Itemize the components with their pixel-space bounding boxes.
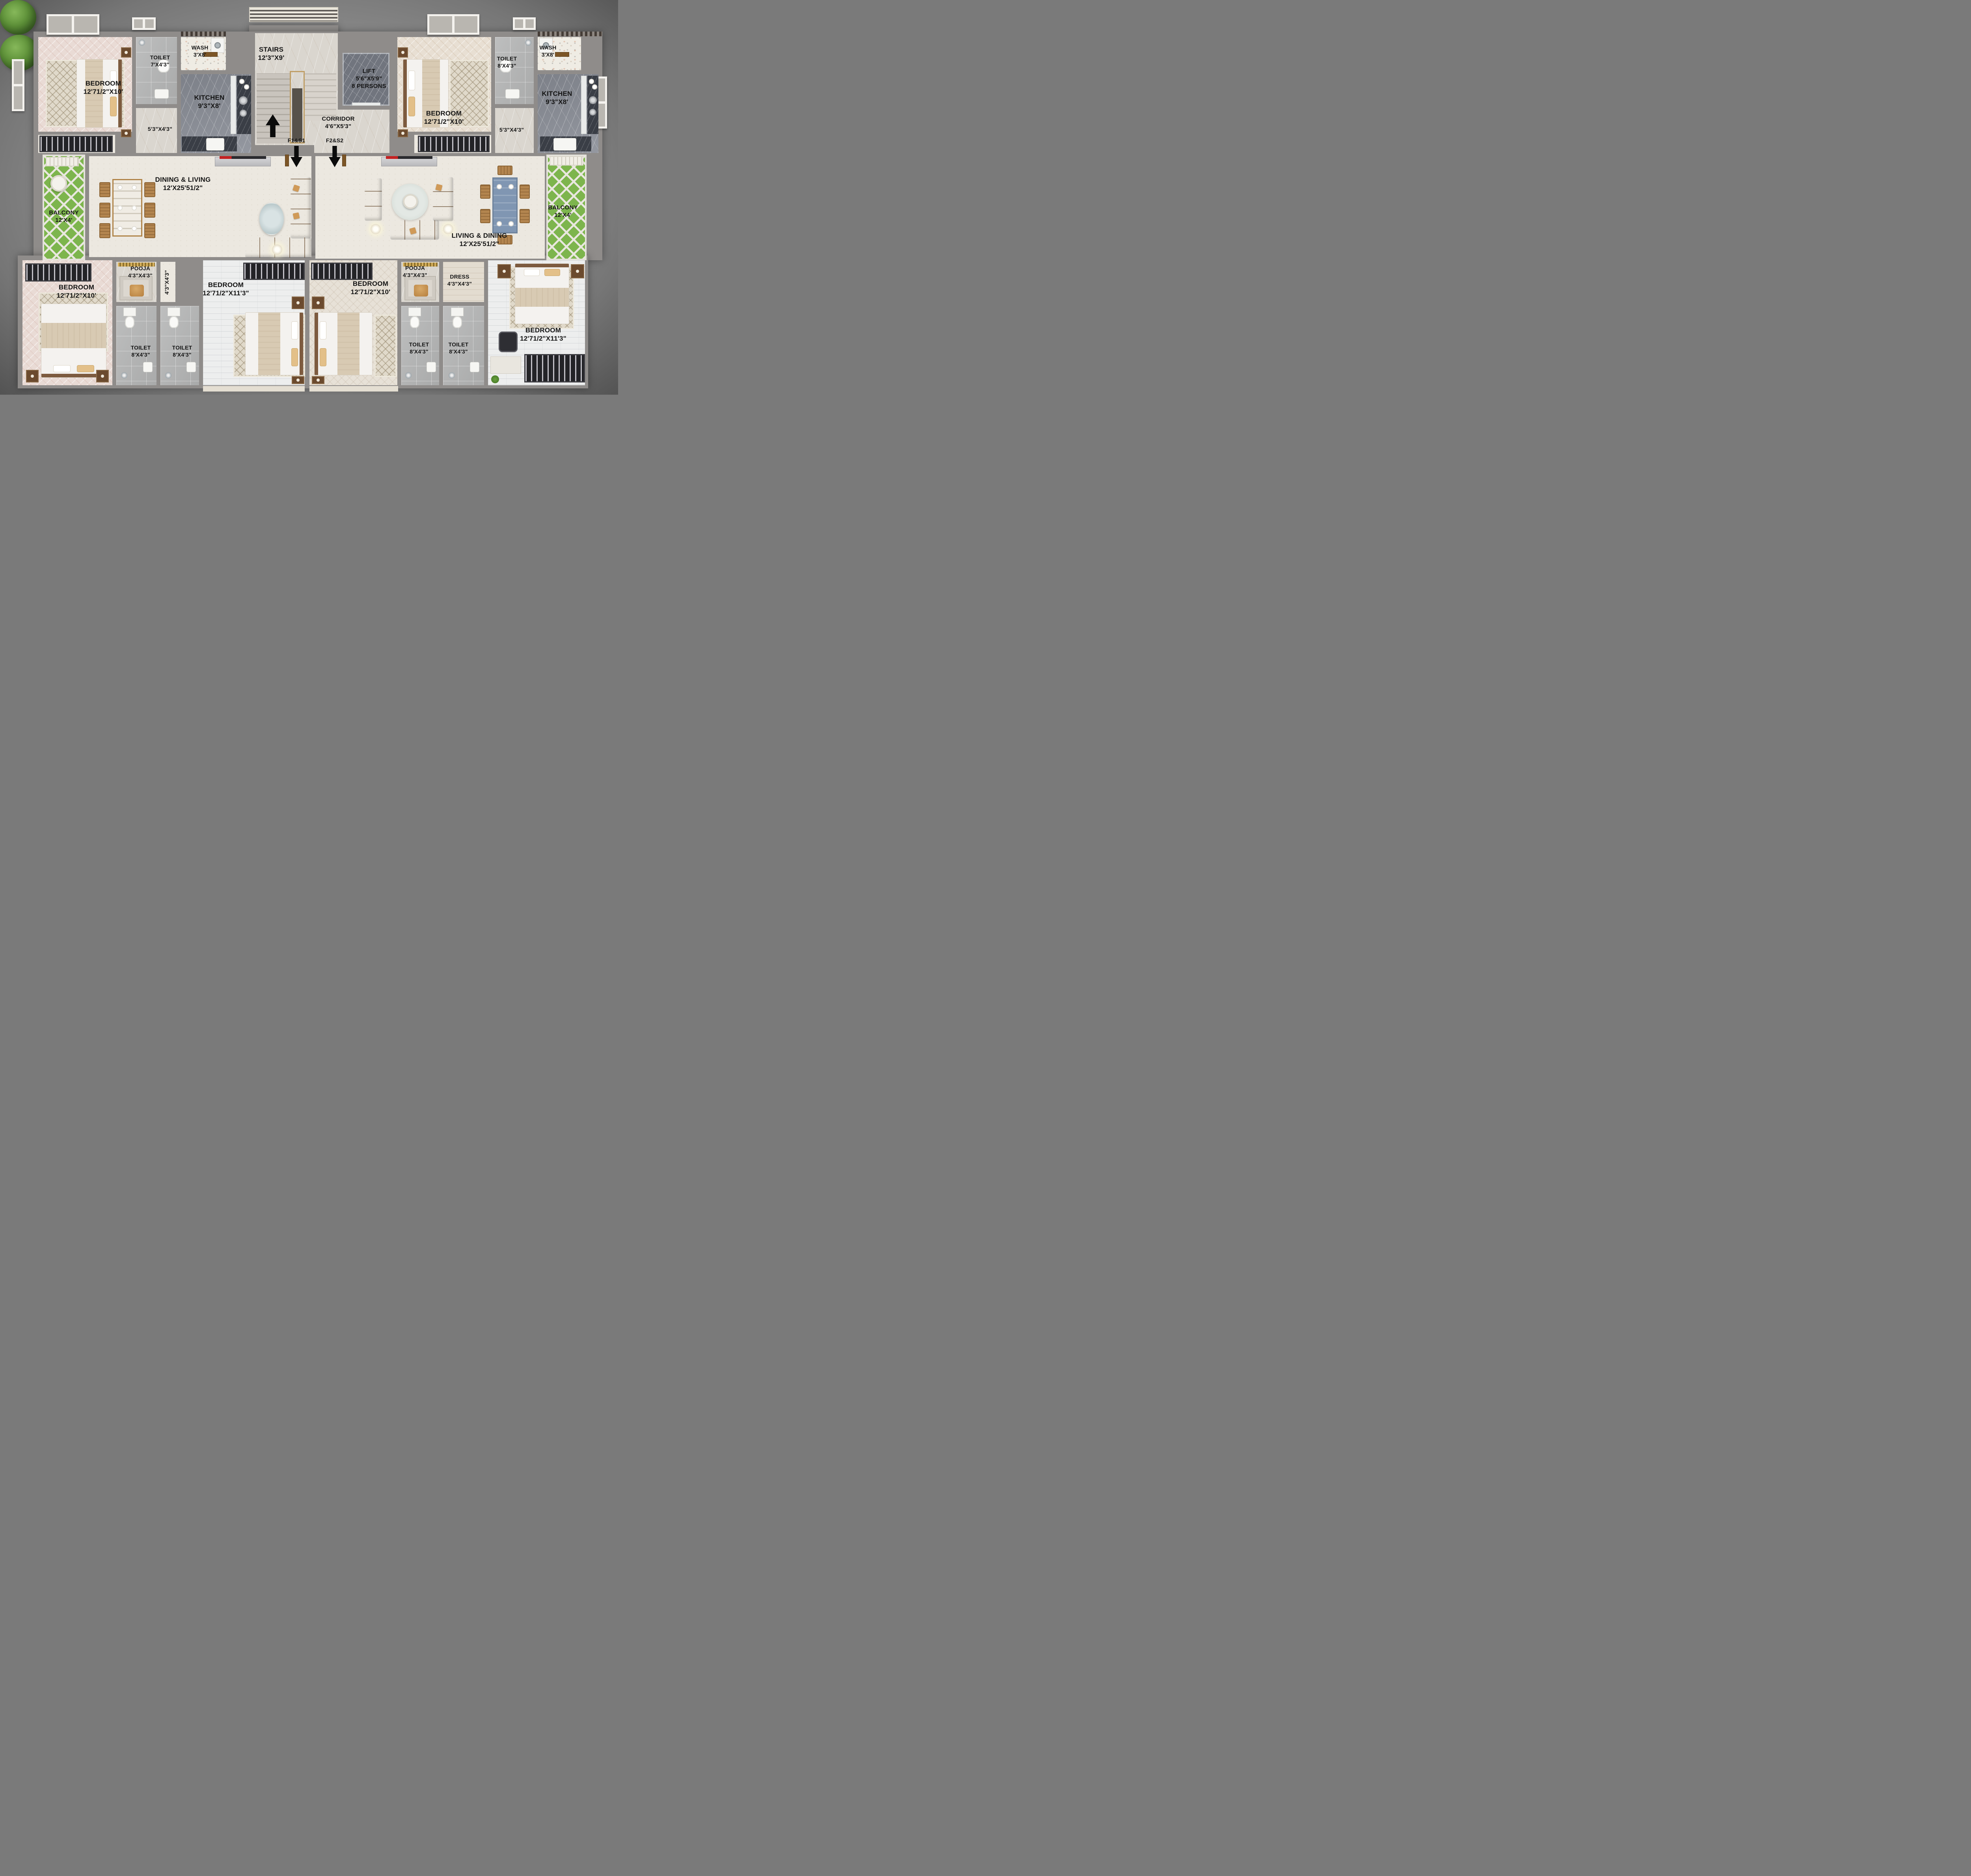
shower-head bbox=[121, 372, 127, 379]
room-label-balcony-left: BALCONY 12'X4' bbox=[49, 210, 79, 224]
room-label-stairs: STAIRS 12'3"X9' bbox=[258, 46, 285, 62]
tree bbox=[0, 0, 36, 35]
room-label-wash-right: WASH 3'X8' bbox=[540, 45, 557, 58]
wash-pergola-right bbox=[538, 32, 602, 36]
room-dims: 8'X4'3" bbox=[497, 63, 516, 69]
room-dims: 12'71/2"X10' bbox=[351, 288, 391, 296]
dining-chair bbox=[144, 203, 155, 218]
room-name: TOILET bbox=[449, 341, 469, 348]
room-name: STAIRS bbox=[259, 46, 283, 53]
room-dims: 4'3"X4'3" bbox=[403, 272, 427, 278]
room-name: BEDROOM bbox=[353, 280, 388, 287]
office-chair bbox=[500, 333, 516, 351]
toilet-cistern bbox=[123, 308, 136, 316]
dining-chair bbox=[99, 182, 110, 197]
room-dims: 7'X4'3" bbox=[151, 62, 169, 68]
room-label-bedroom-bottom-center-left: BEDROOM 12'71/2"X11'3" bbox=[203, 281, 249, 297]
nightstand bbox=[121, 129, 131, 137]
room-name: DRESS bbox=[450, 274, 469, 280]
room-label-toilet-bottom-left-1: TOILET 8'X4'3" bbox=[131, 345, 151, 358]
unit-label-f2s2: F2&S2 bbox=[326, 138, 344, 144]
room-dims: 12'71/2"X11'3" bbox=[203, 289, 249, 297]
dining-chair bbox=[144, 182, 155, 197]
room-name: LIFT bbox=[363, 68, 375, 75]
kitchen-cabinet bbox=[231, 76, 236, 134]
room-label-bedroom-bottom-center-right: BEDROOM 12'71/2"X10' bbox=[351, 280, 391, 296]
pergola-roof bbox=[249, 7, 338, 22]
dining-chair bbox=[144, 223, 155, 238]
floor-lamp bbox=[371, 224, 381, 234]
room-dims: 3'X8' bbox=[542, 52, 555, 58]
room-name: TOILET bbox=[150, 54, 170, 61]
sofa bbox=[365, 178, 382, 221]
room-label-pooja-left: POOJA 4'3"X4'3" bbox=[128, 265, 153, 278]
balcony-table bbox=[50, 175, 67, 192]
room-label-toilet-bottom-right-1: TOILET 8'X4'3" bbox=[409, 341, 429, 354]
coffee-table bbox=[259, 203, 284, 235]
lift-door-sill bbox=[352, 103, 380, 106]
tv-screen bbox=[386, 156, 432, 159]
wardrobe bbox=[243, 263, 305, 280]
room-name: BEDROOM bbox=[208, 281, 244, 289]
room-label-toilet-top-right: TOILET 8'X4'3" bbox=[497, 56, 517, 69]
nightstand bbox=[571, 264, 584, 278]
room-name: KITCHEN bbox=[194, 94, 225, 101]
wash-pergola-left bbox=[181, 32, 226, 36]
room-name: TOILET bbox=[409, 341, 429, 348]
coffee-table bbox=[403, 194, 418, 209]
room-name: BEDROOM bbox=[86, 80, 121, 87]
nightstand bbox=[292, 376, 304, 384]
room-name: BEDROOM bbox=[426, 110, 462, 117]
nightstand bbox=[398, 47, 408, 58]
room-name: DINING & LIVING bbox=[155, 176, 211, 183]
room-dims: 3'X8' bbox=[194, 52, 207, 58]
room-label-corridor: CORRIDOR 4'6"X5'3" bbox=[322, 116, 354, 130]
room-name: TOILET bbox=[172, 345, 192, 351]
shower-head bbox=[165, 372, 171, 379]
room-dims: 12'71/2"X10' bbox=[84, 88, 123, 95]
room-dims: 12'X25'51/2" bbox=[460, 240, 499, 248]
stair-well bbox=[292, 88, 302, 141]
room-label-dining-living-left: DINING & LIVING 12'X25'51/2" bbox=[155, 176, 211, 192]
room-dims: 4'3"X4'3" bbox=[128, 272, 153, 279]
entry-door-f1 bbox=[285, 155, 289, 166]
room-dims: 4'3"X4'3" bbox=[164, 270, 170, 295]
bed-bottom-center-right bbox=[314, 312, 373, 375]
kitchen-counter bbox=[587, 76, 598, 134]
room-label-passage-top-right: 5'3"X4'3" bbox=[499, 127, 524, 133]
room-name: WASH bbox=[192, 45, 209, 51]
room-dims: 12'3"X9' bbox=[258, 54, 285, 62]
kitchen-cabinet bbox=[581, 76, 587, 134]
sink bbox=[505, 89, 520, 99]
room-label-toilet-bottom-left-2: TOILET 8'X4'3" bbox=[172, 345, 192, 358]
nightstand bbox=[292, 297, 304, 309]
room-name: BEDROOM bbox=[525, 326, 561, 334]
room-dims: 12'71/2"X10' bbox=[57, 292, 97, 299]
room-dims: 5'3"X4'3" bbox=[499, 127, 524, 133]
toilet-cistern bbox=[451, 308, 464, 316]
entry-door-f2 bbox=[342, 155, 346, 166]
tv-screen bbox=[220, 156, 266, 159]
room-name: WASH bbox=[540, 45, 557, 51]
shower-head bbox=[405, 372, 412, 379]
bed-bottom-right bbox=[515, 263, 569, 324]
dining-table-right bbox=[492, 177, 518, 233]
toilet-cistern bbox=[408, 308, 421, 316]
pooja-shrine bbox=[119, 276, 153, 300]
room-dims: 12'X4' bbox=[554, 212, 571, 219]
toilet-bowl bbox=[169, 316, 179, 328]
room-dims: 9'3"X8' bbox=[546, 98, 568, 106]
room-dims: 4'6"X5'3" bbox=[325, 123, 352, 130]
room-dims: 8'X4'3" bbox=[410, 349, 428, 355]
room-floor-balcony-left bbox=[43, 155, 85, 260]
room-dims: 12'X25'51/2" bbox=[163, 184, 203, 192]
kitchen-sink bbox=[553, 138, 576, 151]
room-label-kitchen-right: KITCHEN 9'3"X8' bbox=[542, 90, 572, 106]
plant bbox=[491, 375, 499, 383]
unit-label-f1s1: F1&S1 bbox=[288, 138, 306, 144]
floor-plan: BEDROOM 12'71/2"X10' TOILET 7'X4'3" WASH… bbox=[0, 0, 618, 395]
shower-head bbox=[139, 39, 145, 46]
toilet-bowl bbox=[453, 316, 462, 328]
pooja-shrine bbox=[404, 276, 436, 300]
dining-chair bbox=[520, 185, 530, 199]
rug bbox=[374, 315, 397, 377]
room-dims: 5'3"X4'3" bbox=[148, 126, 172, 132]
room-name: TOILET bbox=[497, 56, 517, 62]
room-label-kitchen-left: KITCHEN 9'3"X8' bbox=[194, 94, 225, 110]
desk bbox=[490, 356, 521, 374]
nightstand bbox=[312, 376, 324, 384]
dining-chair bbox=[480, 209, 490, 223]
sink bbox=[186, 362, 196, 372]
nightstand bbox=[96, 370, 109, 382]
window-top-left-large bbox=[47, 14, 99, 35]
room-dims: 12'71/2"X11'3" bbox=[520, 335, 566, 342]
dining-chair bbox=[520, 209, 530, 223]
room-label-bedroom-top-right: BEDROOM 12'71/2"X10' bbox=[424, 110, 464, 125]
window-top-left-small bbox=[132, 17, 156, 30]
window-left-wall bbox=[12, 59, 24, 111]
room-name: KITCHEN bbox=[542, 90, 572, 97]
room-label-toilet-top-left: TOILET 7'X4'3" bbox=[150, 54, 170, 67]
room-label-balcony-right: BALCONY 12'X4' bbox=[548, 205, 578, 219]
wardrobe bbox=[311, 263, 373, 280]
window-top-right-large bbox=[427, 14, 479, 35]
room-dims: 8'X4'3" bbox=[173, 352, 191, 358]
toilet-bowl bbox=[125, 316, 134, 328]
room-name: POOJA bbox=[405, 265, 425, 271]
room-capacity: 8 PERSONS bbox=[352, 83, 386, 90]
nightstand bbox=[497, 264, 511, 278]
room-label-toilet-bottom-right-2: TOILET 8'X4'3" bbox=[449, 341, 469, 354]
wardrobe bbox=[39, 136, 113, 152]
room-dims: 5'6"X5'9" bbox=[356, 76, 382, 82]
entry-step bbox=[203, 386, 305, 392]
toilet-cistern bbox=[168, 308, 180, 316]
balcony-bench bbox=[550, 156, 583, 166]
window-top-right-small bbox=[513, 17, 536, 30]
stair-steps bbox=[305, 73, 336, 121]
room-label-passage-top-left: 5'3"X4'3" bbox=[148, 126, 172, 132]
nightstand bbox=[398, 129, 408, 137]
room-label-passage-bottom-left: 4'3"X4'3" bbox=[164, 270, 170, 295]
dining-chair bbox=[99, 203, 110, 218]
sink bbox=[470, 362, 479, 372]
room-name: BALCONY bbox=[49, 210, 79, 216]
toilet-bowl bbox=[410, 316, 419, 328]
cushion bbox=[293, 213, 300, 220]
sink bbox=[427, 362, 436, 372]
washing-machine bbox=[211, 38, 224, 53]
nightstand bbox=[312, 297, 324, 309]
room-dims: 8'X4'3" bbox=[449, 349, 468, 355]
room-name: BEDROOM bbox=[59, 283, 94, 291]
dining-chair bbox=[480, 185, 490, 199]
wardrobe bbox=[524, 354, 585, 382]
sink bbox=[155, 89, 169, 99]
floor-lamp bbox=[272, 244, 282, 255]
room-name: POOJA bbox=[130, 265, 150, 272]
kitchen-sink bbox=[206, 138, 224, 151]
room-dims: 12'71/2"X10' bbox=[424, 118, 464, 125]
room-label-bedroom-bottom-right: BEDROOM 12'71/2"X11'3" bbox=[520, 326, 566, 342]
unit-code: F2&S2 bbox=[326, 138, 344, 144]
room-label-dress: DRESS 4'3"X4'3" bbox=[447, 274, 472, 287]
unit-code: F1&S1 bbox=[288, 138, 306, 144]
dining-chair bbox=[99, 223, 110, 238]
room-name: LIVING & DINING bbox=[452, 232, 507, 239]
dining-chair bbox=[497, 166, 512, 175]
room-dims: 4'3"X4'3" bbox=[447, 281, 472, 287]
kitchen-counter bbox=[237, 76, 251, 134]
sink bbox=[143, 362, 153, 372]
dining-table-left bbox=[112, 179, 142, 237]
shower-head bbox=[525, 39, 531, 46]
entry-step bbox=[309, 386, 398, 392]
room-label-bedroom-bottom-left: BEDROOM 12'71/2"X10' bbox=[57, 283, 97, 299]
shower-head bbox=[449, 372, 455, 379]
bed-bottom-left bbox=[41, 304, 106, 378]
bed-bottom-center-left bbox=[245, 312, 304, 375]
wardrobe bbox=[418, 136, 490, 152]
nightstand bbox=[26, 370, 39, 382]
balcony-bench bbox=[46, 157, 79, 166]
room-label-pooja-right: POOJA 4'3"X4'3" bbox=[403, 265, 427, 278]
door bbox=[555, 52, 569, 57]
room-label-lift: LIFT 5'6"X5'9" 8 PERSONS bbox=[352, 68, 386, 90]
room-name: TOILET bbox=[131, 345, 151, 351]
room-label-wash-left: WASH 3'X8' bbox=[192, 45, 209, 58]
room-dims: 8'X4'3" bbox=[131, 352, 150, 358]
room-name: BALCONY bbox=[548, 205, 578, 211]
room-label-bedroom-top-left: BEDROOM 12'71/2"X10' bbox=[84, 80, 123, 95]
sofa bbox=[433, 177, 453, 221]
room-dims: 9'3"X8' bbox=[198, 102, 220, 110]
room-dims: 12'X4' bbox=[55, 217, 72, 224]
room-label-living-dining-right: LIVING & DINING 12'X25'51/2" bbox=[452, 232, 507, 248]
nightstand bbox=[121, 47, 131, 58]
room-name: CORRIDOR bbox=[322, 116, 354, 123]
wardrobe bbox=[25, 263, 91, 282]
